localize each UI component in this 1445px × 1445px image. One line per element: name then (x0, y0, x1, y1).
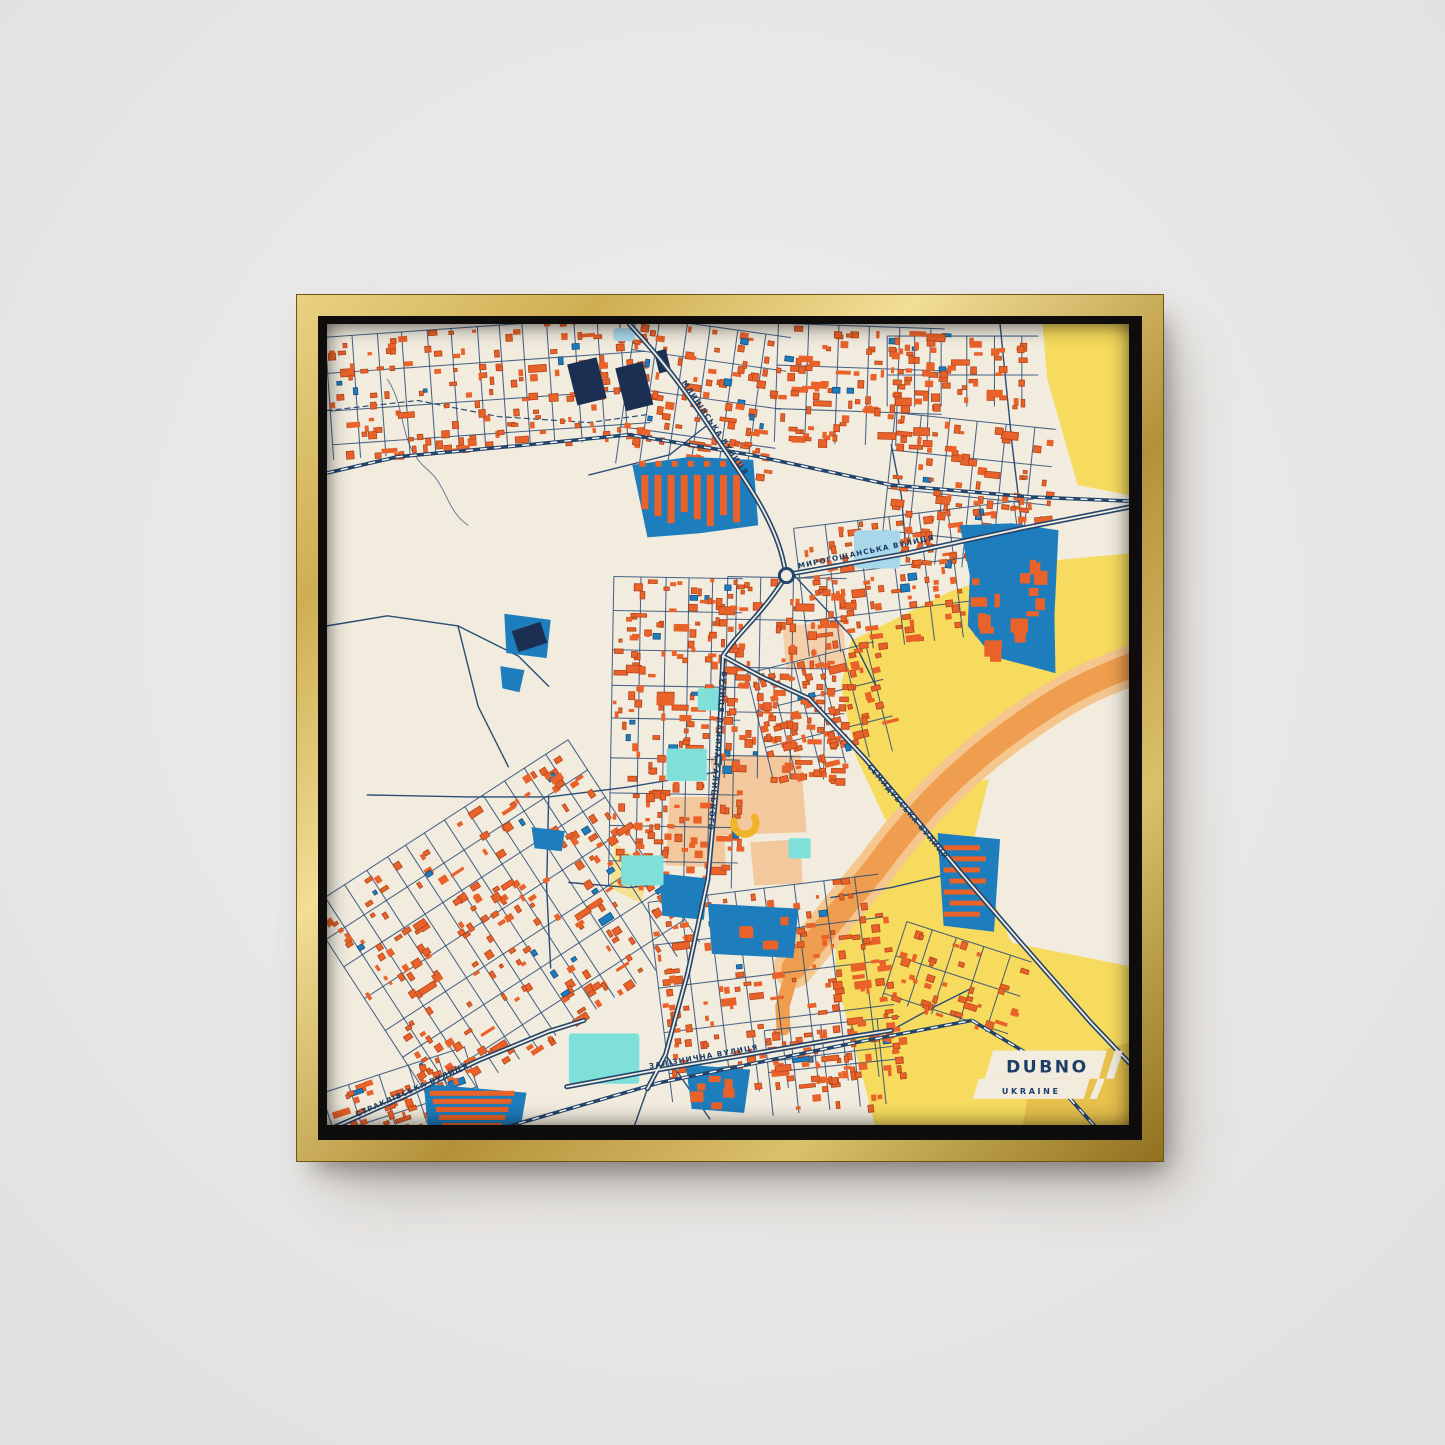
gold-picture-frame: МЛИНІВСЬКА ВУЛИЦЯ МИРОГОЩАНСЬКА ВУЛИЦЯ В… (296, 294, 1164, 1162)
city-map: МЛИНІВСЬКА ВУЛИЦЯ МИРОГОЩАНСЬКА ВУЛИЦЯ В… (327, 324, 1129, 1125)
plaque-city-name: DUBNO (1006, 1058, 1089, 1078)
roundabout (779, 569, 793, 583)
map-canvas: МЛИНІВСЬКА ВУЛИЦЯ МИРОГОЩАНСЬКА ВУЛИЦЯ В… (327, 324, 1129, 1125)
wall: МЛИНІВСЬКА ВУЛИЦЯ МИРОГОЩАНСЬКА ВУЛИЦЯ В… (0, 0, 1445, 1445)
plaque-country-name: UKRAINE (1002, 1087, 1061, 1096)
frame-floater-gap: МЛИНІВСЬКА ВУЛИЦЯ МИРОГОЩАНСЬКА ВУЛИЦЯ В… (318, 316, 1142, 1140)
